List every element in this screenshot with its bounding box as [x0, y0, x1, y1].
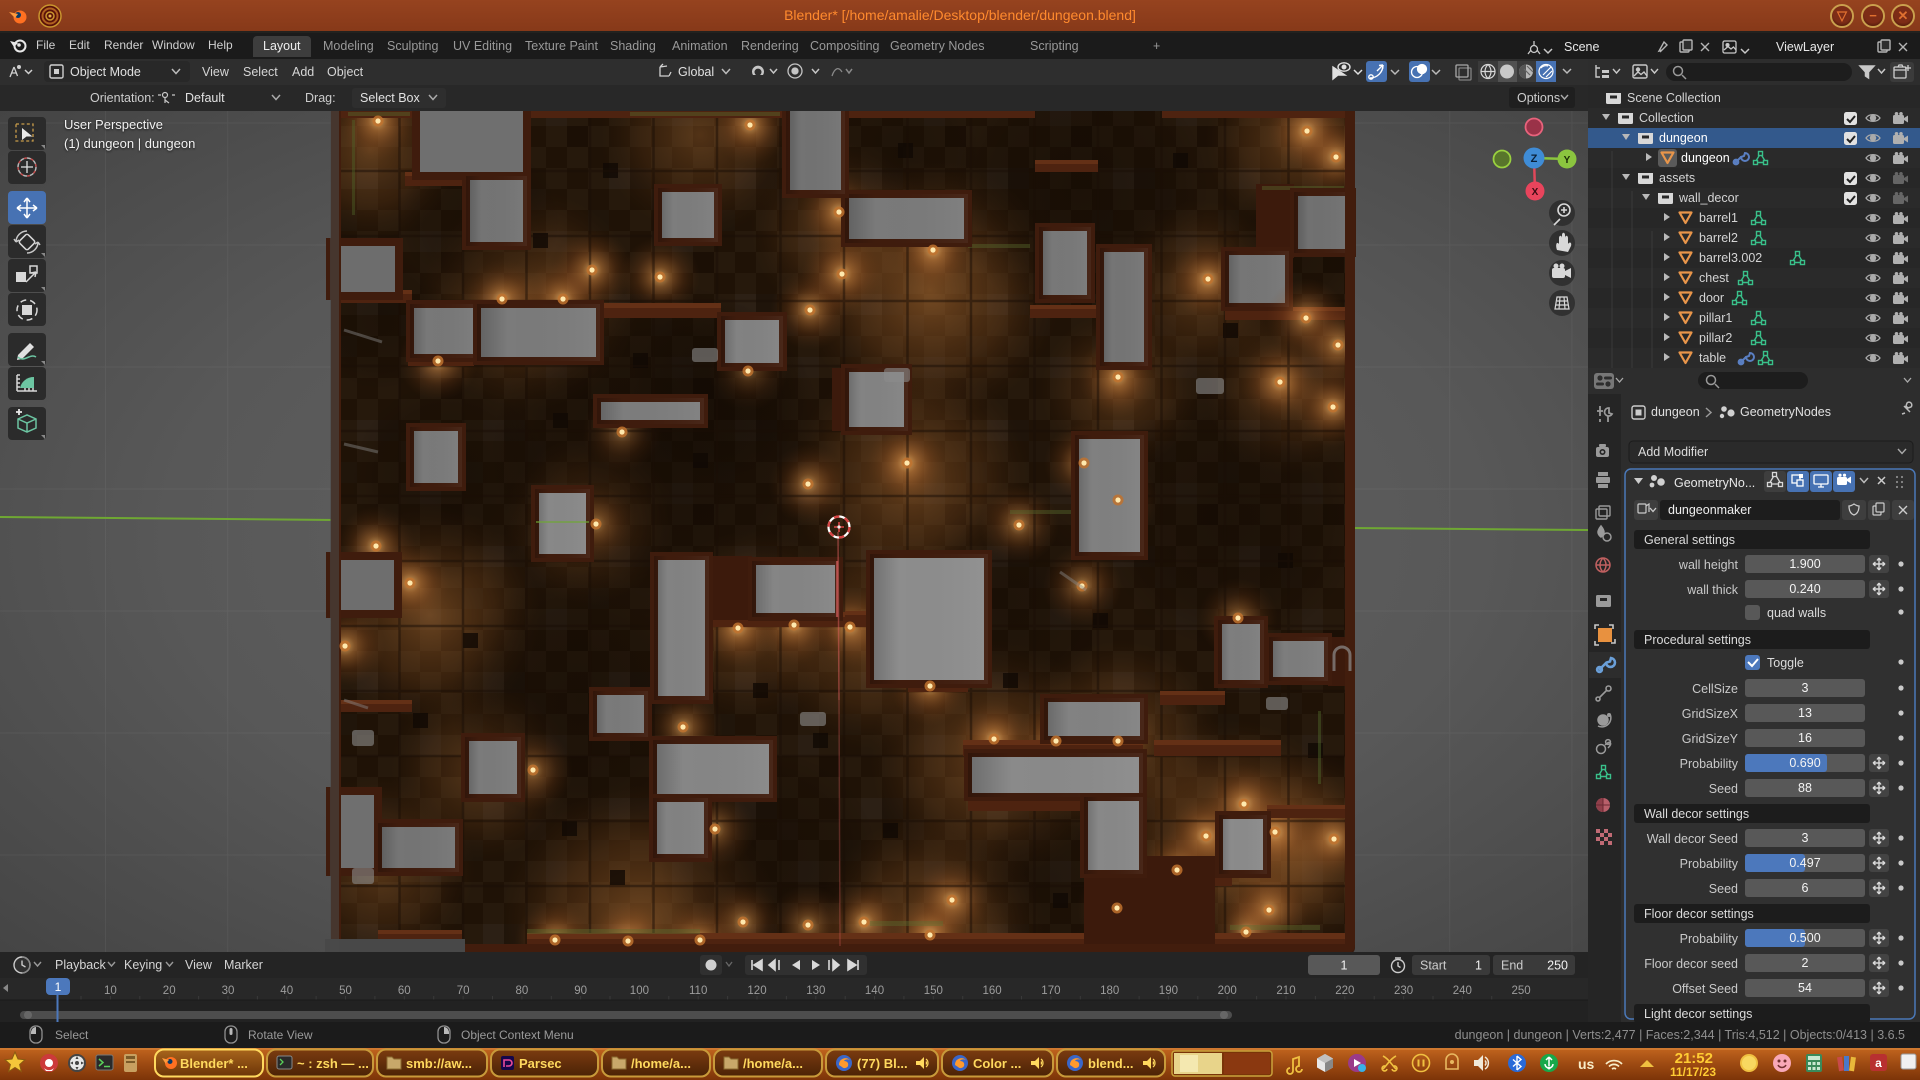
- svg-text:View: View: [202, 65, 230, 79]
- svg-text:200: 200: [1218, 985, 1237, 997]
- svg-text:Start: Start: [1420, 959, 1447, 973]
- svg-text:Drag:: Drag:: [305, 91, 336, 105]
- svg-text:smb://aw...: smb://aw...: [406, 1056, 472, 1071]
- svg-text:50: 50: [339, 985, 352, 997]
- svg-text:GridSizeY: GridSizeY: [1682, 732, 1739, 746]
- svg-text:Select Box: Select Box: [360, 91, 421, 105]
- svg-text:View: View: [185, 958, 213, 972]
- svg-text:Default: Default: [185, 91, 225, 105]
- svg-text:70: 70: [457, 985, 470, 997]
- svg-text:88: 88: [1798, 781, 1812, 795]
- svg-text:us: us: [1578, 1056, 1595, 1072]
- svg-text:170: 170: [1041, 985, 1060, 997]
- svg-text:Marker: Marker: [224, 958, 263, 972]
- svg-text:0.240: 0.240: [1789, 582, 1820, 596]
- svg-text:1: 1: [1475, 959, 1482, 973]
- svg-text:Seed: Seed: [1709, 882, 1738, 896]
- svg-text:Select: Select: [55, 1028, 89, 1042]
- svg-text:140: 140: [865, 985, 884, 997]
- svg-text:Scene: Scene: [1564, 40, 1599, 54]
- svg-text:CellSize: CellSize: [1692, 682, 1738, 696]
- svg-text:230: 230: [1394, 985, 1413, 997]
- svg-text:Object Context Menu: Object Context Menu: [461, 1028, 574, 1042]
- svg-text:General settings: General settings: [1644, 533, 1735, 547]
- svg-text:160: 160: [983, 985, 1002, 997]
- svg-text:180: 180: [1100, 985, 1119, 997]
- svg-text:Keying: Keying: [124, 958, 162, 972]
- svg-text:GeometryNodes: GeometryNodes: [1740, 405, 1831, 419]
- svg-text:90: 90: [574, 985, 587, 997]
- svg-text:Add: Add: [292, 65, 314, 79]
- svg-text:250: 250: [1512, 985, 1531, 997]
- svg-text:210: 210: [1276, 985, 1295, 997]
- svg-text:GridSizeX: GridSizeX: [1682, 707, 1739, 721]
- svg-text:40: 40: [280, 985, 293, 997]
- svg-text:Object Mode: Object Mode: [70, 65, 141, 79]
- svg-text:quad walls: quad walls: [1767, 606, 1826, 620]
- svg-text:Probability: Probability: [1680, 932, 1739, 946]
- svg-text:Rotate View: Rotate View: [248, 1028, 313, 1042]
- svg-text:240: 240: [1453, 985, 1472, 997]
- svg-text:Z: Z: [1531, 153, 1538, 165]
- svg-text:wall thick: wall thick: [1686, 583, 1738, 597]
- svg-text:a: a: [1875, 1056, 1882, 1070]
- svg-text:120: 120: [747, 985, 766, 997]
- svg-text:/home/a...: /home/a...: [631, 1056, 691, 1071]
- svg-text:Orientation:: Orientation:: [90, 91, 155, 105]
- svg-text:Offset Seed: Offset Seed: [1672, 982, 1738, 996]
- svg-text:130: 130: [806, 985, 825, 997]
- svg-text:Probability: Probability: [1680, 757, 1739, 771]
- svg-text:X: X: [1532, 187, 1539, 198]
- svg-text:Seed: Seed: [1709, 782, 1738, 796]
- svg-text:250: 250: [1547, 959, 1568, 973]
- svg-text:(77) Bl...: (77) Bl...: [857, 1056, 908, 1071]
- svg-text:Select: Select: [243, 65, 278, 79]
- svg-text:0.690: 0.690: [1789, 756, 1820, 770]
- svg-text:0.500: 0.500: [1789, 931, 1820, 945]
- svg-text:blend...: blend...: [1088, 1056, 1134, 1071]
- svg-text:Floor decor seed: Floor decor seed: [1644, 957, 1738, 971]
- svg-text:1: 1: [1341, 959, 1348, 973]
- svg-text:Y: Y: [1564, 155, 1571, 166]
- svg-text:Wall decor settings: Wall decor settings: [1644, 807, 1749, 821]
- svg-text:dungeonmaker: dungeonmaker: [1668, 503, 1751, 517]
- svg-text:110: 110: [689, 985, 707, 997]
- svg-text:Color ...: Color ...: [973, 1056, 1021, 1071]
- svg-text:80: 80: [516, 985, 529, 997]
- svg-text:Playback: Playback: [55, 958, 106, 972]
- svg-text:Floor decor settings: Floor decor settings: [1644, 907, 1754, 921]
- svg-text:ViewLayer: ViewLayer: [1776, 40, 1834, 54]
- svg-text:150: 150: [924, 985, 943, 997]
- svg-text:2: 2: [1802, 956, 1809, 970]
- svg-text:220: 220: [1335, 985, 1354, 997]
- svg-text:Blender* ...: Blender* ...: [180, 1056, 248, 1071]
- svg-text:dungeon | dungeon | Verts:2,47: dungeon | dungeon | Verts:2,477 | Faces:…: [1455, 1028, 1905, 1042]
- svg-text:16: 16: [1798, 731, 1812, 745]
- svg-text:3: 3: [1802, 681, 1809, 695]
- svg-text:Global: Global: [678, 65, 714, 79]
- svg-text:30: 30: [222, 985, 235, 997]
- svg-text:190: 190: [1159, 985, 1178, 997]
- svg-text:20: 20: [163, 985, 176, 997]
- svg-text:1.900: 1.900: [1789, 557, 1820, 571]
- svg-text:wall height: wall height: [1678, 558, 1739, 572]
- svg-text:Object: Object: [327, 65, 364, 79]
- svg-text:Parsec: Parsec: [519, 1056, 562, 1071]
- svg-text:GeometryNo...: GeometryNo...: [1674, 476, 1755, 490]
- svg-text:54: 54: [1798, 981, 1812, 995]
- svg-text:13: 13: [1798, 706, 1812, 720]
- svg-text:100: 100: [630, 985, 649, 997]
- svg-text:10: 10: [104, 985, 117, 997]
- svg-text:0.497: 0.497: [1789, 856, 1820, 870]
- svg-text:Procedural settings: Procedural settings: [1644, 633, 1751, 647]
- svg-text:/home/a...: /home/a...: [743, 1056, 803, 1071]
- svg-text:Toggle: Toggle: [1767, 656, 1804, 670]
- svg-text:dungeon: dungeon: [1651, 405, 1700, 419]
- svg-text:60: 60: [398, 985, 411, 997]
- svg-text:11/17/23: 11/17/23: [1670, 1065, 1716, 1079]
- svg-text:Wall decor Seed: Wall decor Seed: [1647, 832, 1738, 846]
- svg-text:1: 1: [55, 980, 62, 994]
- svg-text:End: End: [1501, 959, 1523, 973]
- svg-text:~ : zsh — ...: ~ : zsh — ...: [297, 1056, 369, 1071]
- svg-text:6: 6: [1802, 881, 1809, 895]
- svg-text:3: 3: [1802, 831, 1809, 845]
- svg-text:Light decor settings: Light decor settings: [1644, 1007, 1752, 1021]
- svg-text:Probability: Probability: [1680, 857, 1739, 871]
- svg-text:Add Modifier: Add Modifier: [1638, 445, 1708, 459]
- svg-text:Options: Options: [1517, 91, 1560, 105]
